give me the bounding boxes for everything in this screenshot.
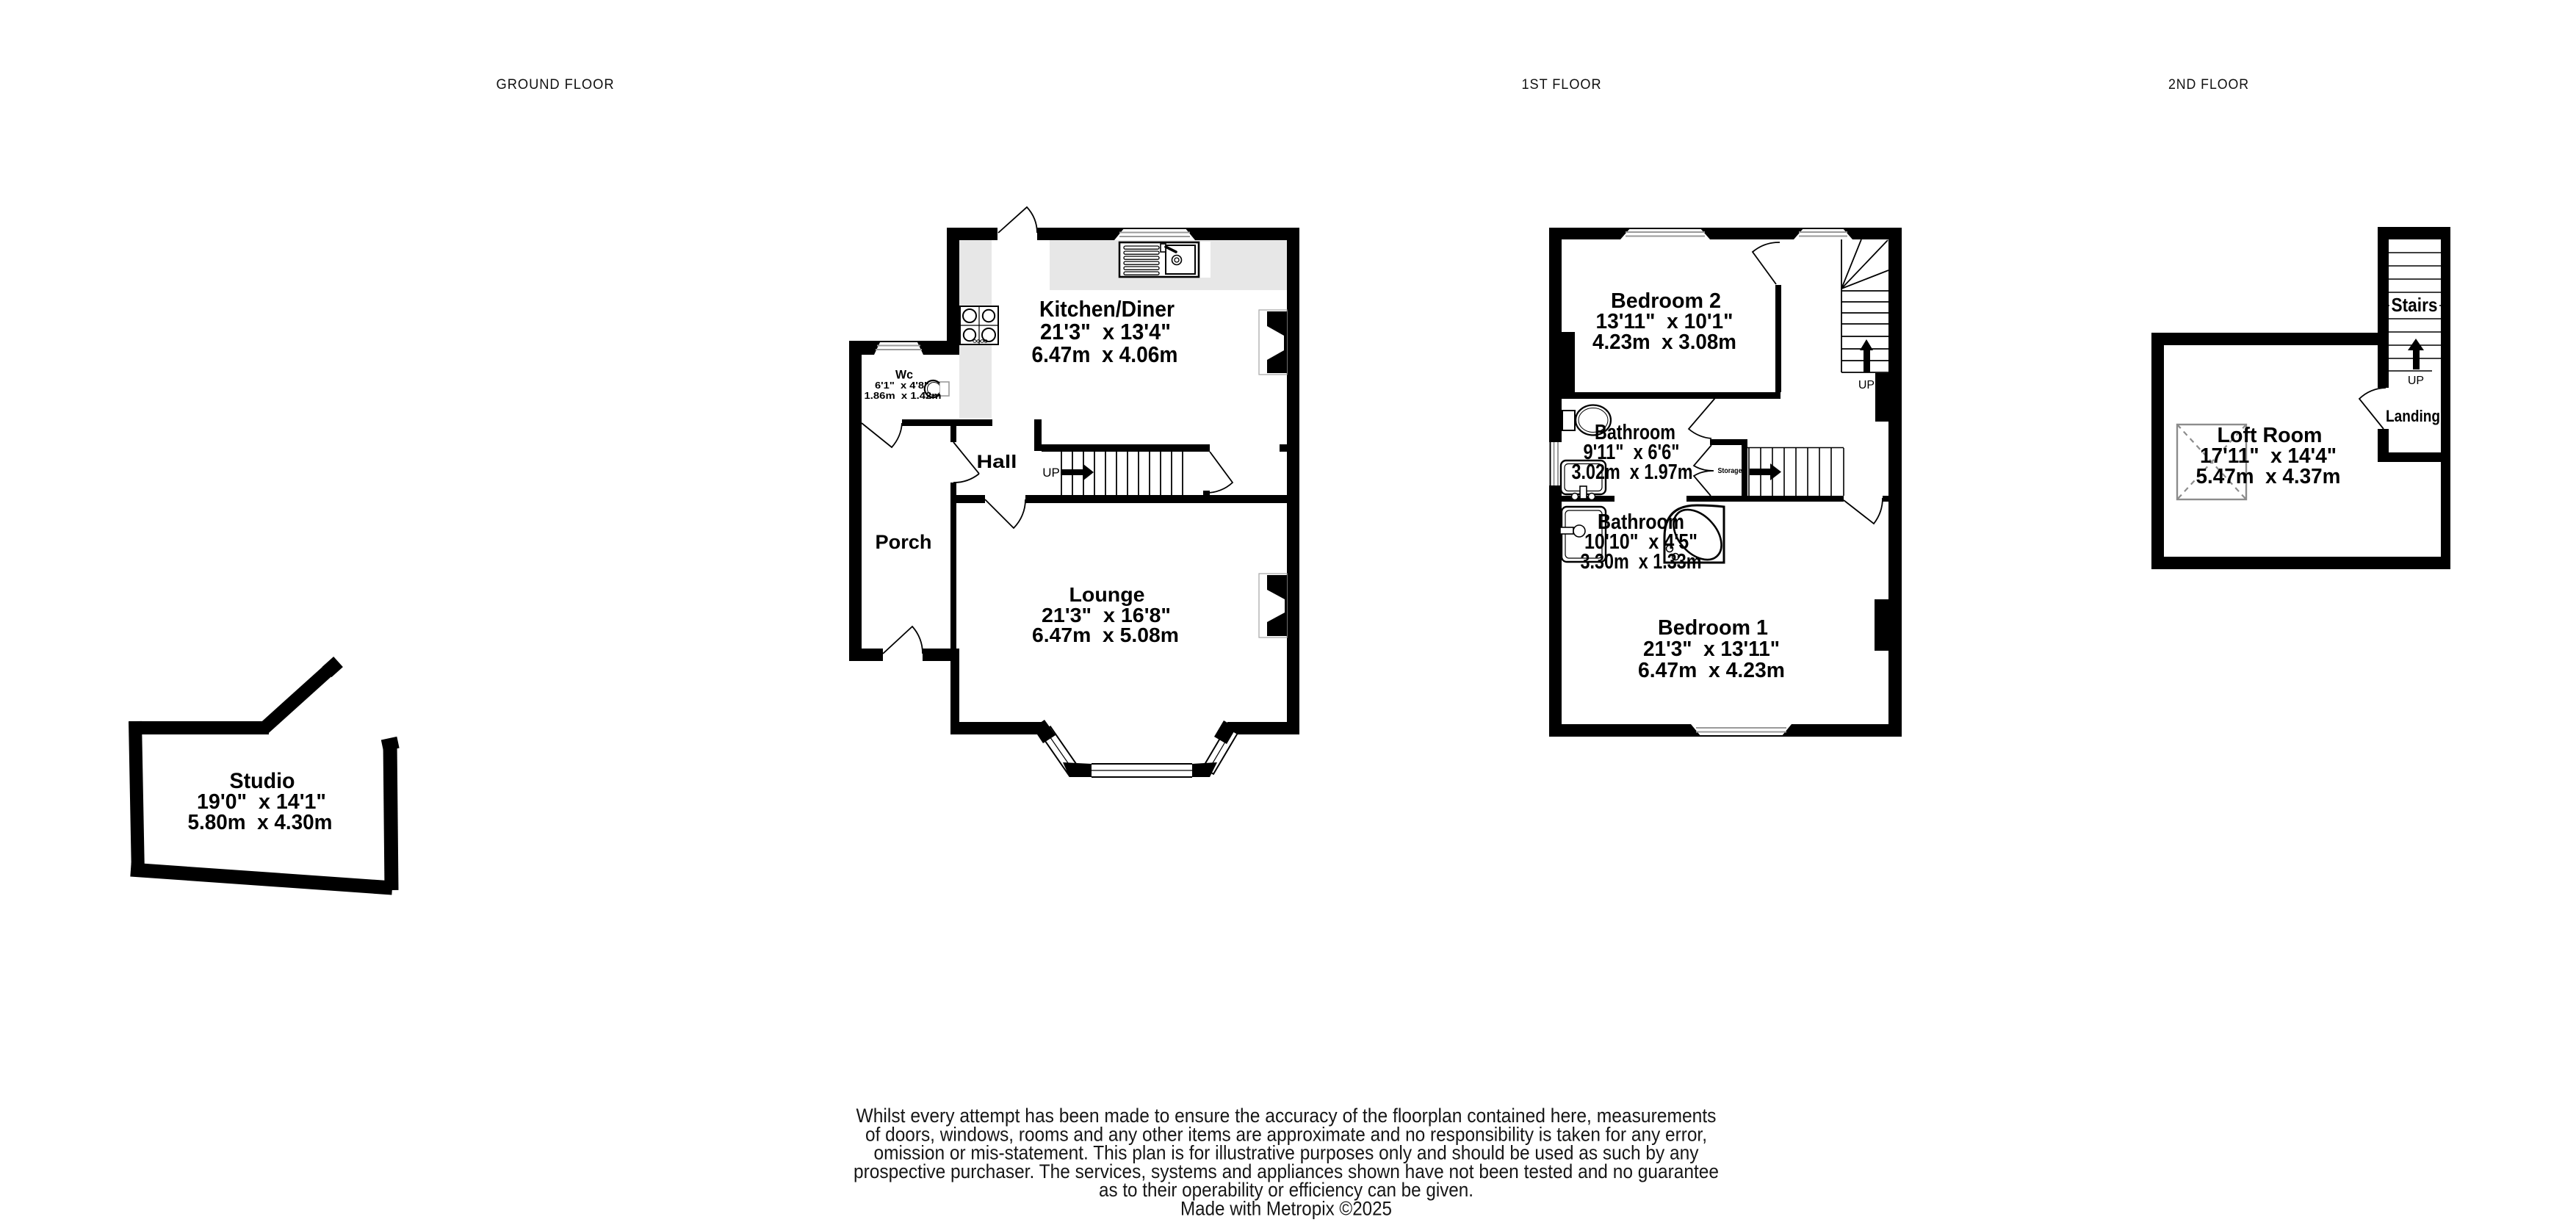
svg-text:6.47m x 4.06m: 6.47m x 4.06m (1032, 342, 1178, 367)
svg-text:3.30m x 1.33m: 3.30m x 1.33m (1581, 550, 1702, 574)
svg-text:UP: UP (2408, 375, 2424, 387)
svg-text:2ND FLOOR: 2ND FLOOR (2168, 76, 2249, 93)
svg-text:Made with Metropix ©2025: Made with Metropix ©2025 (1180, 1198, 1392, 1220)
svg-text:5.47m x 4.37m: 5.47m x 4.37m (2196, 465, 2341, 488)
svg-text:Lounge: Lounge (1069, 583, 1145, 606)
svg-text:Bedroom 1: Bedroom 1 (1658, 616, 1768, 640)
svg-text:Stairs: Stairs (2392, 294, 2438, 316)
svg-text:Kitchen/Diner: Kitchen/Diner (1039, 296, 1175, 322)
svg-text:1.86m x 1.42m: 1.86m x 1.42m (865, 390, 942, 401)
svg-text:21'3" x 13'4": 21'3" x 13'4" (1040, 319, 1171, 344)
svg-text:21'3" x 13'11": 21'3" x 13'11" (1643, 638, 1780, 661)
svg-text:5.80m x 4.30m: 5.80m x 4.30m (188, 811, 333, 834)
svg-text:UP: UP (1858, 379, 1875, 391)
svg-text:UP: UP (1042, 466, 1060, 480)
svg-text:Porch: Porch (876, 531, 932, 553)
svg-text:4.23m x 3.08m: 4.23m x 3.08m (1592, 331, 1736, 354)
svg-text:6.47m x 5.08m: 6.47m x 5.08m (1032, 624, 1179, 646)
svg-text:Storage: Storage (1718, 467, 1742, 475)
svg-text:6'1" x 4'8": 6'1" x 4'8" (875, 380, 929, 391)
svg-text:GROUND FLOOR: GROUND FLOOR (497, 76, 615, 93)
svg-text:3.02m x 1.97m: 3.02m x 1.97m (1572, 460, 1693, 484)
svg-text:6.47m x 4.23m: 6.47m x 4.23m (1638, 659, 1785, 682)
svg-text:Hall: Hall (977, 452, 1017, 472)
svg-text:1ST FLOOR: 1ST FLOOR (1522, 76, 1602, 93)
svg-text:Landing: Landing (2386, 407, 2440, 425)
